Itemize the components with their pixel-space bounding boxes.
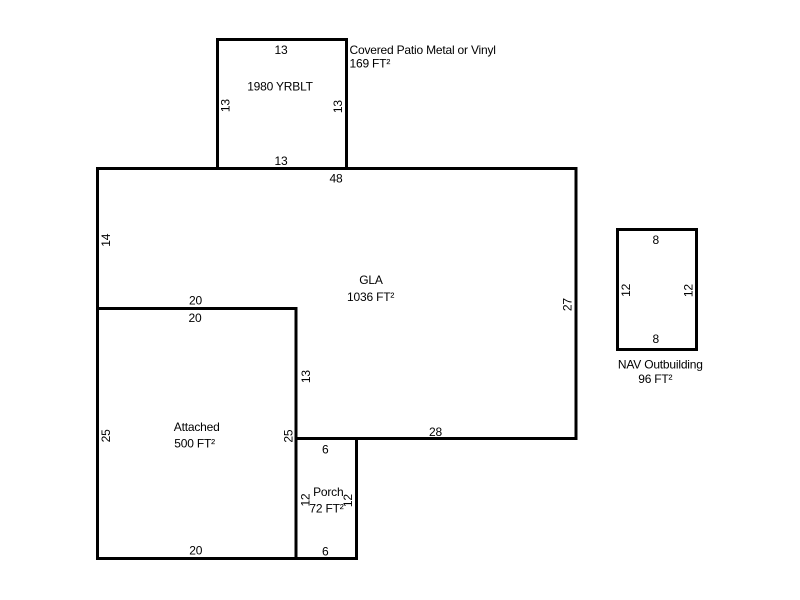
svg-text:GLA: GLA <box>359 273 383 287</box>
svg-text:12: 12 <box>681 284 695 297</box>
svg-text:Covered Patio Metal or Vinyl: Covered Patio Metal or Vinyl <box>350 43 496 57</box>
svg-text:48: 48 <box>330 172 343 186</box>
svg-text:13: 13 <box>218 99 232 112</box>
svg-text:8: 8 <box>652 233 659 247</box>
svg-text:28: 28 <box>429 425 442 439</box>
svg-text:6: 6 <box>322 443 329 457</box>
svg-text:25: 25 <box>99 429 113 442</box>
svg-text:13: 13 <box>299 370 313 383</box>
svg-text:20: 20 <box>189 294 202 308</box>
svg-text:Attached: Attached <box>174 420 220 434</box>
svg-text:13: 13 <box>331 100 345 113</box>
svg-text:500 FT²: 500 FT² <box>174 436 215 450</box>
svg-text:NAV Outbuilding: NAV Outbuilding <box>618 357 703 371</box>
svg-text:1980 YRBLT: 1980 YRBLT <box>247 80 313 94</box>
svg-text:25: 25 <box>281 429 295 442</box>
svg-text:12: 12 <box>341 494 355 507</box>
svg-text:96 FT²: 96 FT² <box>638 372 672 386</box>
svg-text:169 FT²: 169 FT² <box>350 57 391 71</box>
svg-text:13: 13 <box>275 154 288 168</box>
svg-text:14: 14 <box>99 233 113 246</box>
svg-text:13: 13 <box>275 43 288 57</box>
svg-text:8: 8 <box>652 332 659 346</box>
svg-text:Porch: Porch <box>313 485 343 499</box>
svg-text:27: 27 <box>561 298 575 311</box>
svg-text:20: 20 <box>189 544 202 558</box>
svg-text:6: 6 <box>322 545 329 559</box>
svg-text:1036 FT²: 1036 FT² <box>347 290 394 304</box>
svg-text:20: 20 <box>189 311 202 325</box>
svg-text:72 FT²: 72 FT² <box>309 502 343 516</box>
svg-text:12: 12 <box>299 493 313 506</box>
svg-text:12: 12 <box>619 283 633 296</box>
